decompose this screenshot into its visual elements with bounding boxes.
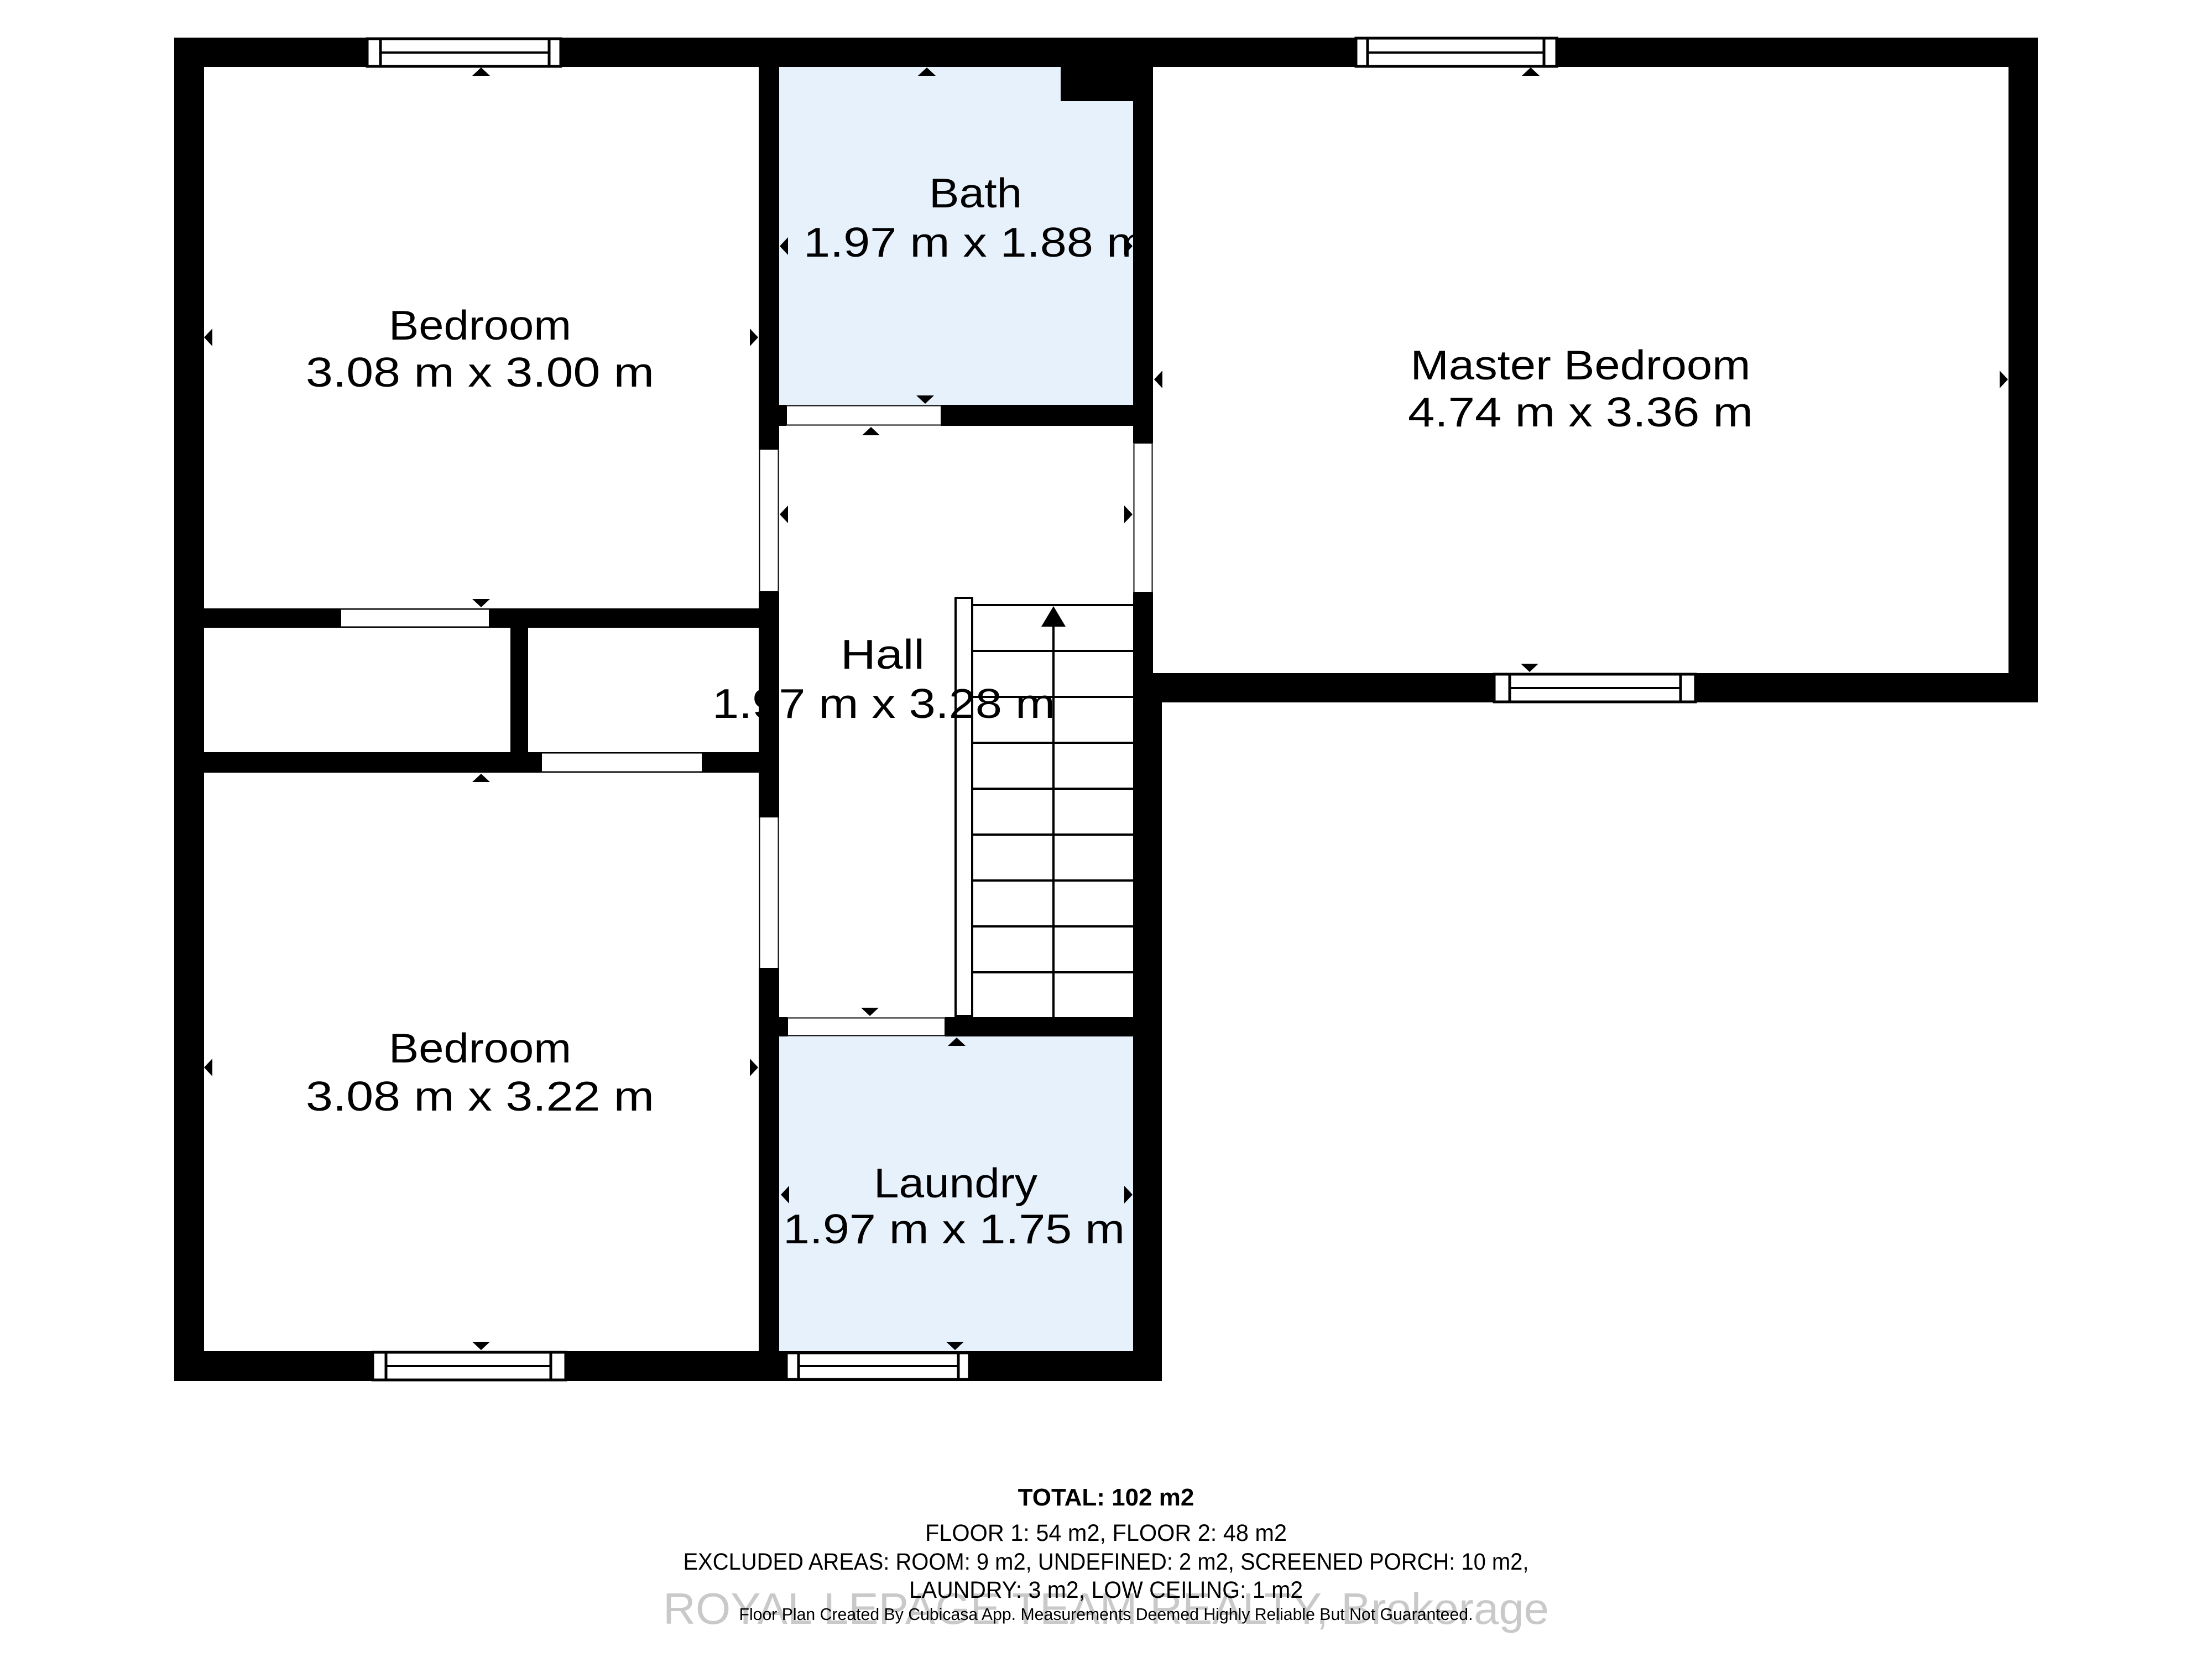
svg-text:3.08 m x 3.00 m: 3.08 m x 3.00 m xyxy=(306,349,654,395)
svg-text:Laundry: Laundry xyxy=(874,1160,1038,1206)
svg-text:FLOOR 1: 54 m2, FLOOR 2: 48 m2: FLOOR 1: 54 m2, FLOOR 2: 48 m2 xyxy=(925,1520,1287,1546)
svg-text:1.97 m x 1.75 m: 1.97 m x 1.75 m xyxy=(783,1206,1125,1252)
svg-text:Bedroom: Bedroom xyxy=(389,302,571,348)
svg-text:3.08 m x 3.22 m: 3.08 m x 3.22 m xyxy=(306,1073,654,1119)
svg-text:1.97 m x 1.88 m: 1.97 m x 1.88 m xyxy=(804,219,1146,265)
svg-text:Floor Plan Created By Cubicasa: Floor Plan Created By Cubicasa App. Meas… xyxy=(739,1604,1473,1624)
svg-text:Bath: Bath xyxy=(929,170,1022,216)
svg-text:TOTAL: 102 m2: TOTAL: 102 m2 xyxy=(1018,1484,1194,1511)
svg-text:Bedroom: Bedroom xyxy=(389,1025,571,1071)
svg-text:EXCLUDED AREAS: ROOM: 9 m2, UN: EXCLUDED AREAS: ROOM: 9 m2, UNDEFINED: 2… xyxy=(684,1549,1529,1575)
svg-text:LAUNDRY: 3 m2, LOW CEILING: 1: LAUNDRY: 3 m2, LOW CEILING: 1 m2 xyxy=(909,1577,1303,1603)
svg-text:Master Bedroom: Master Bedroom xyxy=(1411,342,1751,388)
svg-text:Hall: Hall xyxy=(841,631,925,678)
svg-text:4.74 m x 3.36 m: 4.74 m x 3.36 m xyxy=(1408,389,1753,435)
svg-text:1.97 m x 3.28 m: 1.97 m x 3.28 m xyxy=(712,680,1055,727)
